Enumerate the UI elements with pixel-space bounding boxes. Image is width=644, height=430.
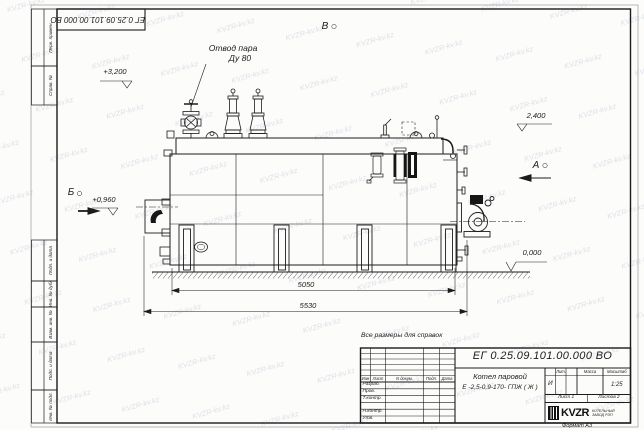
titleblock-col-izm: Изм [362,377,370,381]
margin-label-vzam-inv: Взам. инв. № [44,307,57,342]
titleblock-lit-header: Лит. [556,370,566,374]
titleblock-row-nkontr: Н.контр. [363,410,383,415]
titleblock-row-utv: Утв. [363,417,374,422]
titleblock-sheet-no: Лист 1 [558,396,574,401]
logo-word: KVZR [561,407,589,419]
elevation-3200: +3,200 [103,68,126,76]
drawing-sheet: KVZR-kv.kz KVZR-kv.kz [0,0,644,430]
logo-bars-icon [548,406,559,420]
view-marker-a: А [533,161,540,171]
titleblock-col-data: Дата [441,377,452,381]
margin-label-inv-podl: Инв. № подл. [44,390,57,423]
titleblock-product-name-2: Е -2,5-0,9-170- ГПЖ ( Ж ) [462,385,537,392]
margin-label-sprav-no: Справ. № [44,66,57,105]
titleblock-row-razrab: Разраб. [363,383,380,388]
format-label: Формат А3 [562,424,592,430]
margin-label-podp-data-lower: Подп. и дата [44,342,57,390]
margin-label-perv-primen: Перв. примен. [44,9,57,66]
titleblock-mass-header: Масса [584,370,596,374]
margin-label-podp-data-upper: Подп. и дата [44,240,57,281]
view-marker-b: Б [68,188,75,198]
reference-note: Все размеры для справок [361,333,442,340]
steam-outlet-label-line1: Отвод пара [209,44,258,53]
titleblock-col-podp: Подп. [426,377,437,381]
view-marker-v: В [322,22,329,32]
titleblock-col-list: Лист [373,377,384,381]
margin-label-inv-dubl: Инв. № дубл. [44,281,57,307]
company-name-line2: ЗАВОД РЭП [592,413,615,417]
steam-outlet-label-line2: Ду 80 [229,54,251,63]
corner-stamp-docnum: ЕГ 0.25.09.101.00.000 ВО [57,9,145,30]
elevation-0000: 0,000 [523,249,542,257]
company-logo: KVZR КОТЕЛЬНЫЙ ЗАВОД РЭП [548,404,628,422]
titleblock-row-prov: Пров. [363,390,376,395]
titleblock-row-tkontr: Т.контр. [363,397,382,402]
titleblock-lit-value: И [548,381,553,388]
dim-5050: 5050 [298,281,315,289]
elevation-0960: +0,960 [92,196,115,204]
drawing-linework: KVZR-kv.kz KVZR-kv.kz [0,0,644,430]
titleblock-sheets-total: Листов 2 [598,396,619,401]
titleblock-scale-value: 1:25 [611,382,623,388]
titleblock-scale-header: Масштаб [607,370,627,374]
dim-5530: 5530 [300,302,317,310]
elevation-2400: 2,400 [527,112,546,120]
titleblock-col-ndocum: N докум. [396,377,413,381]
titleblock-product-name-1: Котел паровой [473,373,527,381]
company-name: КОТЕЛЬНЫЙ ЗАВОД РЭП [592,409,615,417]
watermark-layer [0,0,644,430]
titleblock-doc-number: ЕГ 0.25.09.101.00.000 ВО [473,351,613,362]
ground-line [152,272,530,279]
